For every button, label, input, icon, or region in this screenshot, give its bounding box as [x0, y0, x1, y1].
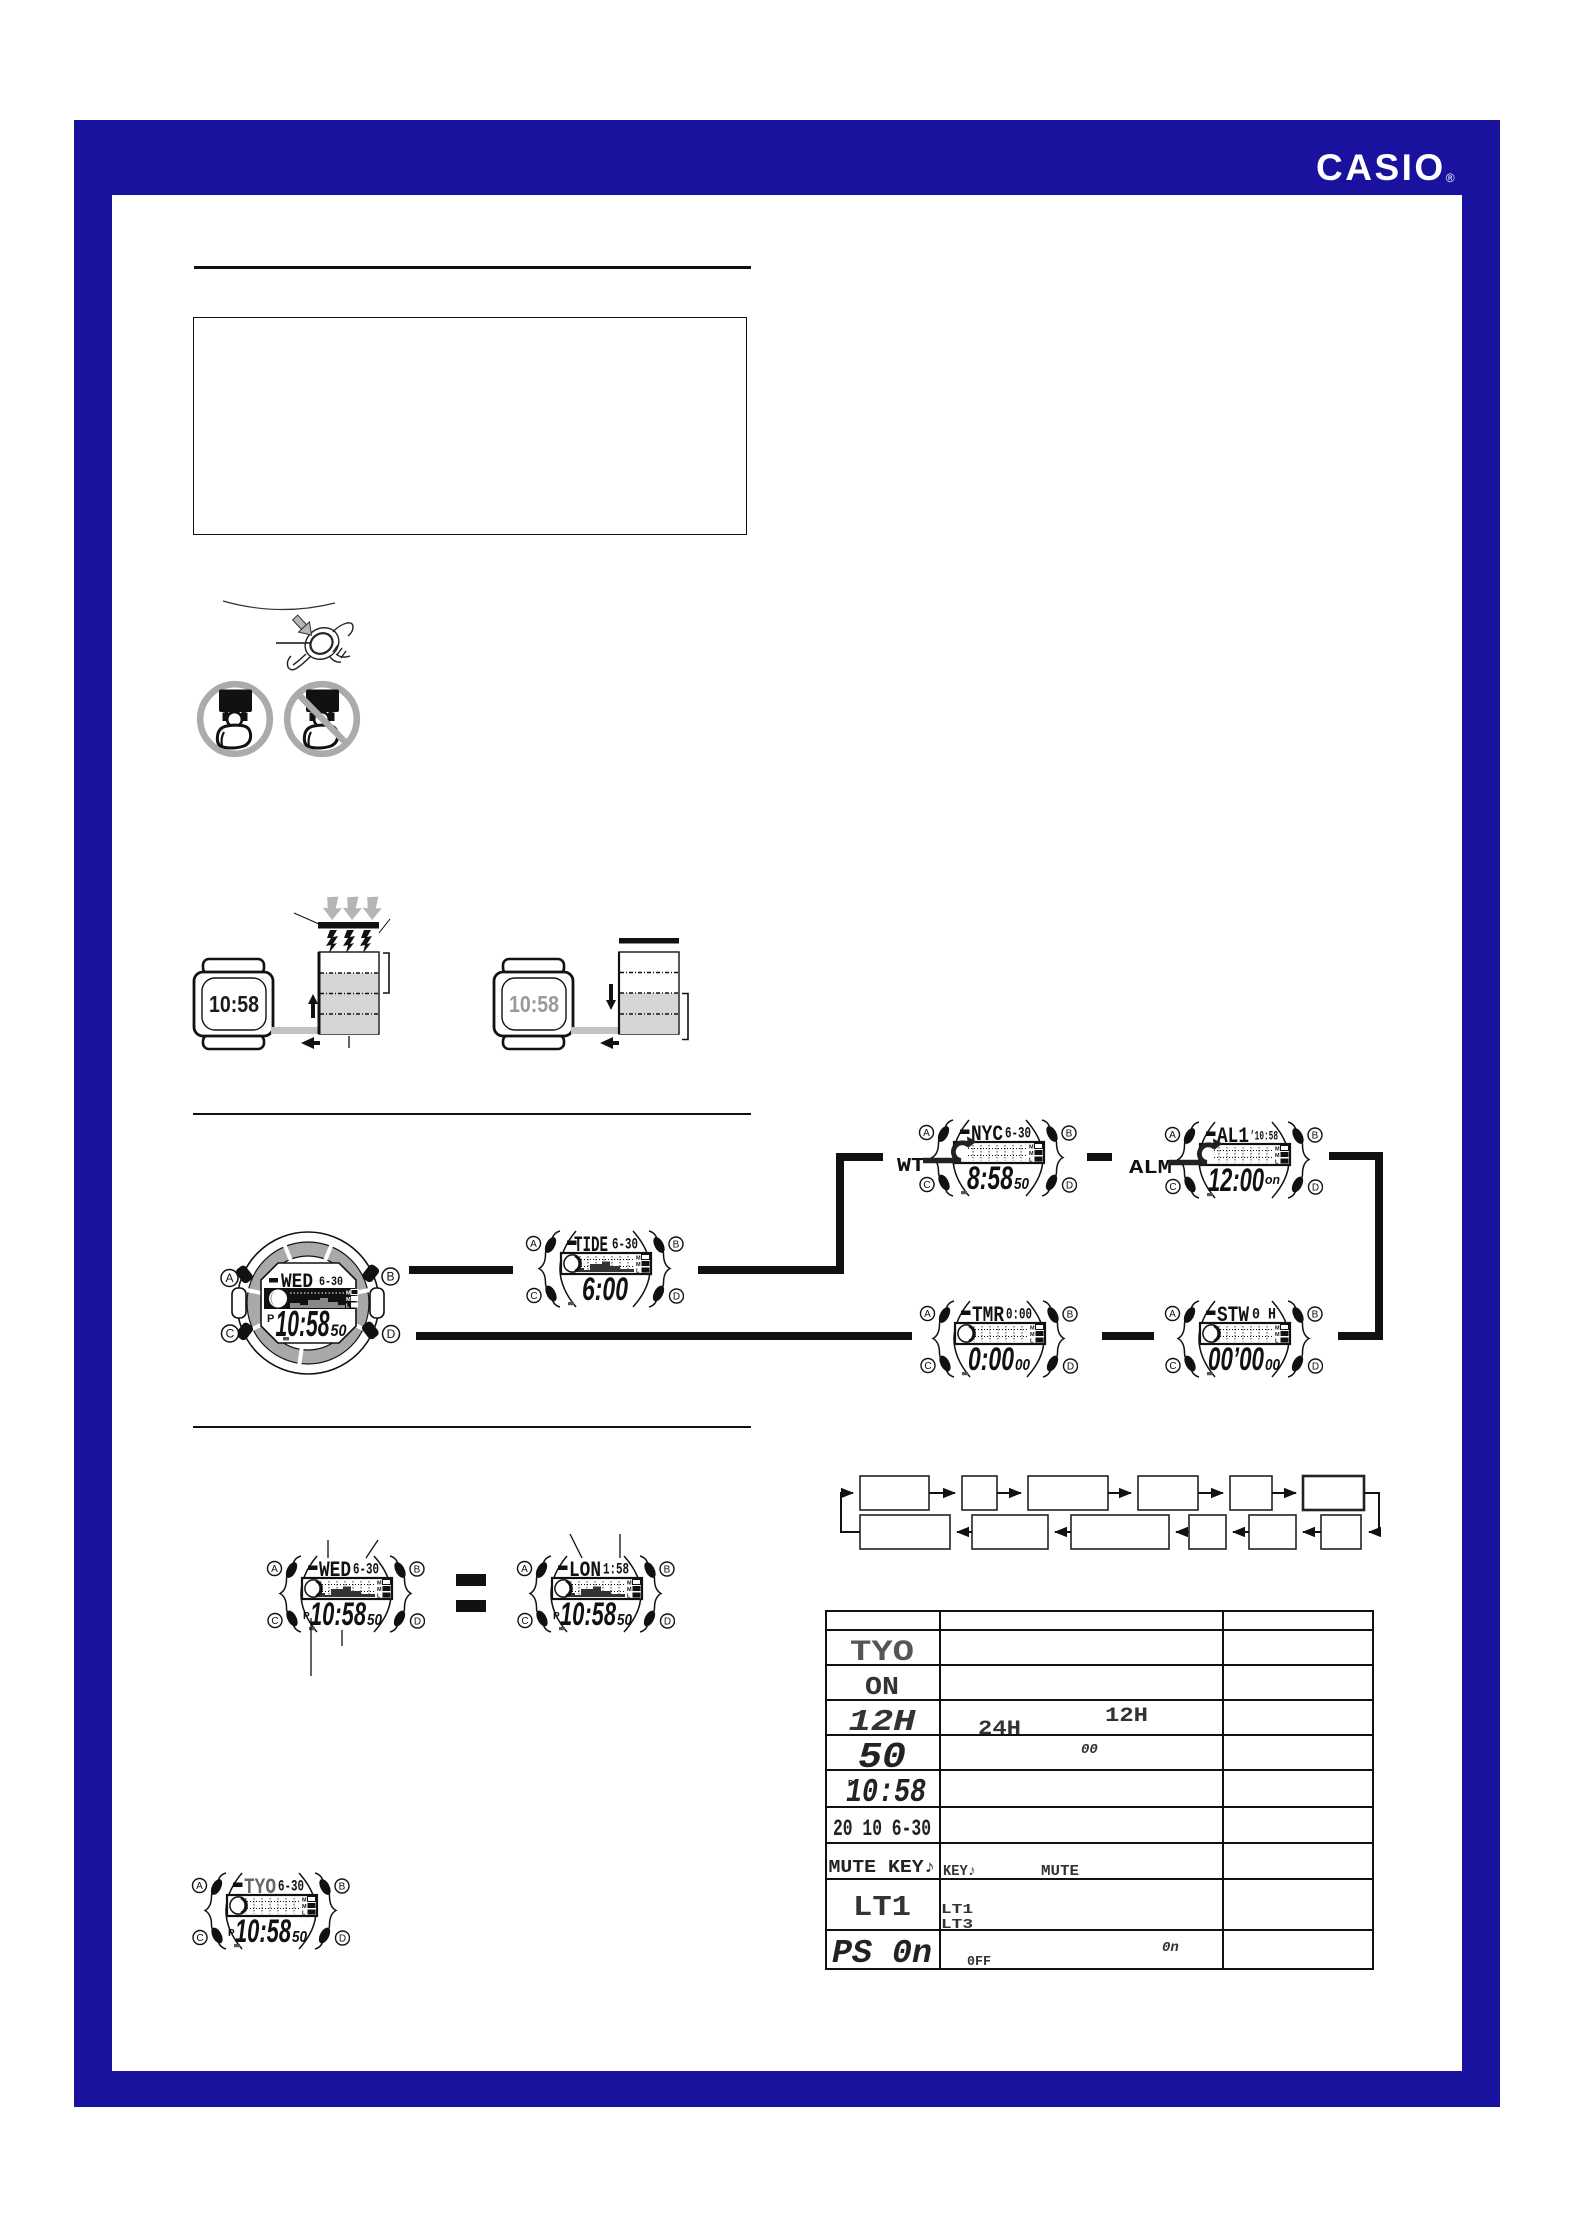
svg-text:0FF: 0FF: [967, 1954, 991, 1970]
svg-text:P: P: [228, 1928, 235, 1939]
svg-text:6-30: 6-30: [278, 1878, 304, 1896]
svg-text:12:00on: 12:00on: [1208, 1162, 1280, 1198]
svg-text:0:00: 0:00: [1006, 1306, 1032, 1324]
svg-text:24H: 24H: [978, 1718, 1021, 1741]
svg-text:M: M: [302, 1904, 307, 1910]
svg-text:M: M: [346, 1297, 351, 1303]
svg-text:TYO: TYO: [850, 1636, 914, 1670]
svg-text:A: A: [924, 1309, 931, 1320]
svg-text:’10:58: ’10:58: [1250, 1129, 1278, 1144]
svg-text:MUTE: MUTE: [1041, 1863, 1079, 1880]
svg-text:M: M: [1029, 1145, 1034, 1151]
svg-text:0 H: 0 H: [1252, 1306, 1276, 1324]
svg-text:M: M: [1030, 1326, 1035, 1332]
svg-text:C: C: [1169, 1361, 1176, 1372]
svg-text:A: A: [196, 1881, 203, 1892]
svg-text:M: M: [1275, 1147, 1280, 1153]
svg-text:M: M: [636, 1256, 641, 1262]
svg-text:B: B: [1066, 1128, 1073, 1139]
svg-text:M: M: [1030, 1332, 1035, 1338]
svg-text:D: D: [387, 1327, 396, 1341]
svg-text:M: M: [1275, 1153, 1280, 1159]
svg-text:10:58: 10:58: [509, 991, 559, 1017]
svg-text:A: A: [225, 1271, 233, 1285]
svg-text:B: B: [339, 1881, 346, 1892]
svg-text:A: A: [1169, 1130, 1176, 1141]
svg-text:KEY♪: KEY♪: [943, 1863, 976, 1880]
svg-text:C: C: [924, 1361, 931, 1372]
svg-text:0n: 0n: [1162, 1940, 1179, 1956]
svg-text:D: D: [1067, 1361, 1074, 1372]
svg-text:10:5850: 10:5850: [235, 1913, 307, 1949]
svg-text:C: C: [226, 1327, 235, 1341]
svg-text:A: A: [923, 1128, 930, 1139]
svg-text:D: D: [1312, 1182, 1319, 1193]
svg-text:B: B: [1312, 1309, 1319, 1320]
svg-text:P: P: [848, 1779, 854, 1789]
svg-text:M: M: [302, 1898, 307, 1904]
svg-text:ON: ON: [865, 1672, 899, 1702]
svg-text:D: D: [673, 1291, 680, 1302]
svg-text:B: B: [386, 1270, 394, 1284]
svg-text:D: D: [1066, 1180, 1073, 1191]
svg-text:LT3: LT3: [941, 1917, 973, 1933]
svg-text:6-30: 6-30: [319, 1274, 343, 1289]
svg-text:A: A: [530, 1239, 537, 1250]
svg-text:12H: 12H: [1105, 1705, 1148, 1728]
svg-text:50: 50: [858, 1737, 906, 1778]
svg-text:6-30: 6-30: [1005, 1125, 1031, 1143]
svg-text:C: C: [1169, 1182, 1176, 1193]
svg-text:12H: 12H: [849, 1705, 916, 1740]
svg-text:20 10 6-30: 20 10 6-30: [833, 1816, 931, 1842]
svg-text:B: B: [1312, 1130, 1319, 1141]
svg-text:6-30: 6-30: [612, 1236, 638, 1254]
svg-text:M: M: [346, 1291, 351, 1297]
svg-text:C: C: [923, 1180, 930, 1191]
svg-text:LT1: LT1: [941, 1902, 973, 1918]
svg-text:10:58: 10:58: [209, 991, 259, 1017]
svg-text:6:00: 6:00: [582, 1271, 628, 1307]
svg-text:M: M: [636, 1262, 641, 1268]
svg-text:PS 0n: PS 0n: [832, 1935, 932, 1970]
svg-text:WT: WT: [897, 1155, 925, 1177]
svg-text:8:5850: 8:5850: [967, 1160, 1029, 1196]
svg-text:C: C: [530, 1291, 537, 1302]
svg-text:M: M: [1029, 1151, 1034, 1157]
svg-text:D: D: [1312, 1361, 1319, 1372]
svg-text:10:58: 10:58: [846, 1774, 926, 1811]
svg-text:P: P: [267, 1313, 274, 1325]
svg-text:MUTE KEY♪: MUTE KEY♪: [829, 1858, 936, 1878]
svg-text:B: B: [1067, 1309, 1074, 1320]
svg-text:LT1: LT1: [853, 1891, 911, 1924]
svg-text:00: 00: [1081, 1742, 1098, 1758]
svg-text:M: M: [1275, 1332, 1280, 1338]
svg-text:00’0000: 00’0000: [1208, 1341, 1280, 1377]
svg-text:C: C: [196, 1933, 203, 1944]
svg-text:D: D: [339, 1933, 346, 1944]
svg-text:M: M: [1275, 1326, 1280, 1332]
svg-text:A: A: [1169, 1309, 1176, 1320]
svg-text:B: B: [673, 1239, 680, 1250]
svg-text:ALM: ALM: [1129, 1157, 1172, 1179]
svg-text:0:0000: 0:0000: [968, 1341, 1030, 1377]
